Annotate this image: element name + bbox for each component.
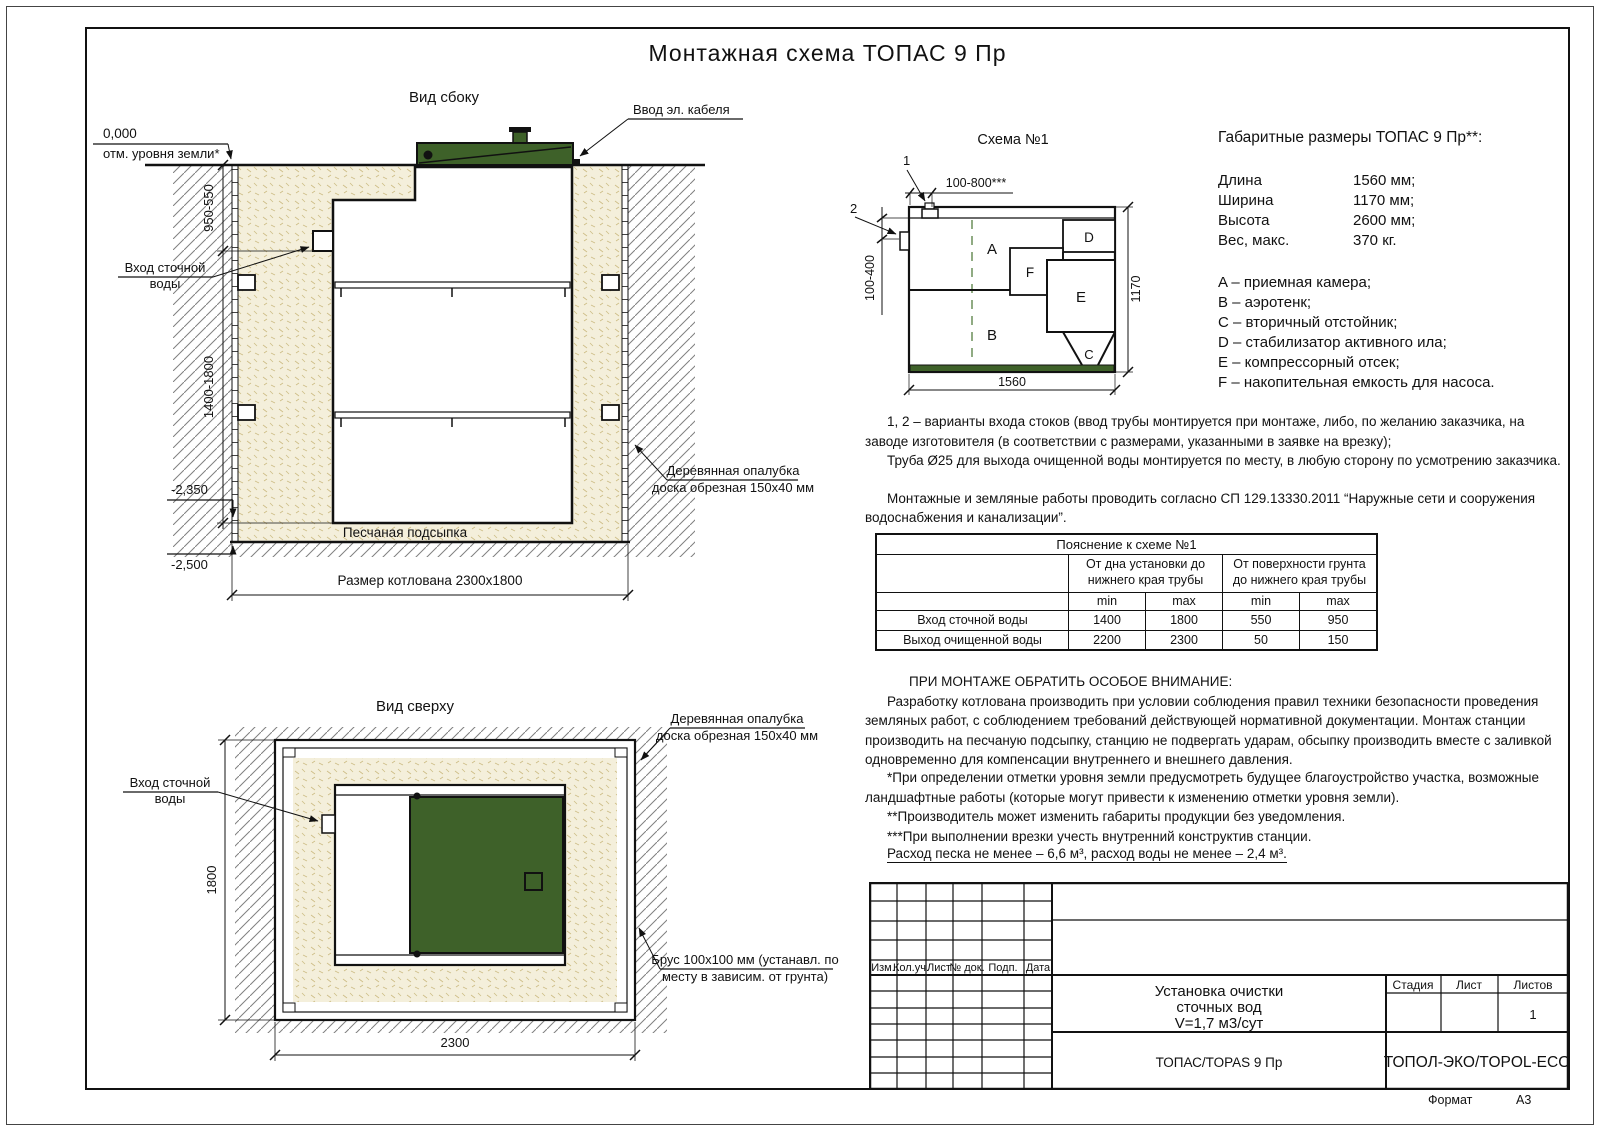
row-value: 950 <box>1300 610 1378 630</box>
row-name: Выход очищенной воды <box>876 630 1069 650</box>
row-value: 550 <box>1223 610 1300 630</box>
explanation-table: Пояснение к схеме №1 От дна установки до… <box>875 533 1378 651</box>
top-view-drawing: Вид сверху Вход сточной воды <box>85 655 865 1095</box>
dim-1170: 1170 <box>1116 202 1143 377</box>
footnotes-block: *При определении отметки уровня земли пр… <box>865 768 1560 846</box>
top-view-title: Вид сверху <box>376 698 455 715</box>
format-label: Формат <box>1428 1093 1472 1107</box>
spec-value: 370 кг. <box>1353 231 1397 251</box>
row-value: 2300 <box>1146 630 1223 650</box>
cable-entry-point <box>573 159 580 166</box>
spec-label: Высота <box>1218 211 1353 231</box>
legend-item: B – аэротенк; <box>1218 293 1578 313</box>
compartment-c-label: C <box>1084 347 1093 362</box>
legend-item: E – компрессорный отсек; <box>1218 353 1578 373</box>
spec-label: Ширина <box>1218 191 1353 211</box>
spec-label: Вес, макс. <box>1218 231 1353 251</box>
table-max-header: max <box>1300 592 1378 610</box>
cable-entry-label: Ввод эл. кабеля <box>633 102 730 117</box>
footnote: *При определении отметки уровня земли пр… <box>865 768 1560 807</box>
footnote: **Производитель может изменить габариты … <box>865 807 1560 827</box>
sheets-header: Листов <box>1514 978 1553 992</box>
marker-2-label: 2 <box>850 201 857 216</box>
specs-title: Габаритные размеры ТОПАС 9 Пр**: <box>1218 129 1578 147</box>
dim-1400-1800: 1400-1800 <box>201 356 216 418</box>
col-izm: Изм. <box>871 962 895 974</box>
inlet-label-line2: воды <box>150 276 181 291</box>
inlet-top-line2: воды <box>155 791 186 806</box>
note-paragraph: 1, 2 – варианты входа стоков (ввод трубы… <box>865 412 1565 451</box>
table-max-header: max <box>1146 592 1223 610</box>
table-title: Пояснение к схеме №1 <box>876 534 1377 554</box>
compartment-f-label: F <box>1026 265 1034 280</box>
spec-value: 1170 мм; <box>1353 191 1414 211</box>
col-koluch: Кол.уч. <box>893 962 929 974</box>
compartment-a-label: A <box>987 241 997 258</box>
table-min-header: min <box>1223 592 1300 610</box>
tank-body <box>333 167 572 523</box>
level-zero-label: 0,000 <box>103 126 137 141</box>
inlet-stub <box>313 231 333 251</box>
col-list: Лист <box>927 962 951 974</box>
schema-title: Схема №1 <box>977 132 1048 148</box>
compartment-b-label: B <box>987 327 997 344</box>
footnote: ***При выполнении врезки учесть внутренн… <box>865 827 1560 847</box>
col-podp: Подп. <box>988 962 1017 974</box>
spec-row: Ширина 1170 мм; <box>1218 191 1578 211</box>
warning-body: Разработку котлована производить при усл… <box>865 692 1560 770</box>
spec-value: 1560 мм; <box>1353 171 1415 191</box>
cable-entry-callout: Ввод эл. кабеля <box>580 102 743 156</box>
level-2500-label: -2,500 <box>171 557 208 572</box>
row-value: 150 <box>1300 630 1378 650</box>
warning-block: ПРИ МОНТАЖЕ ОБРАТИТЬ ОСОБОЕ ВНИМАНИЕ: Ра… <box>865 672 1560 770</box>
col-data: Дата <box>1026 962 1051 974</box>
row-value: 50 <box>1223 630 1300 650</box>
spec-value: 2600 мм; <box>1353 211 1415 231</box>
vent-cap <box>509 127 531 132</box>
timber-line2: месту в зависим. от грунта) <box>662 969 828 984</box>
dim-1560-label: 1560 <box>998 375 1026 389</box>
ground-mark-label: отм. уровня земли* <box>103 146 220 161</box>
dim-100-400-label: 100-400 <box>863 255 877 301</box>
table-group1-header: От дна установки до нижнего края трубы <box>1069 554 1223 592</box>
sand-bed-label: Песчаная подсыпка <box>343 525 468 540</box>
sheets-value: 1 <box>1529 1007 1536 1022</box>
formwork-label-line2: доска обрезная 150x40 мм <box>652 480 814 495</box>
drawing-sheet: Монтажная схема ТОПАС 9 Пр <box>0 0 1600 1131</box>
table-row: Выход очищенной воды 2200 2300 50 150 <box>876 630 1377 650</box>
formwork-top-line1: Деревянная опалубка <box>671 711 805 726</box>
row-value: 1800 <box>1146 610 1223 630</box>
note-paragraph: Труба Ø25 для выхода очищенной воды монт… <box>865 451 1565 471</box>
warning-heading: ПРИ МОНТАЖЕ ОБРАТИТЬ ОСОБОЕ ВНИМАНИЕ: <box>887 672 1560 692</box>
dim-950-550: 950-550 <box>201 184 216 232</box>
legend-item: A – приемная камера; <box>1218 273 1578 293</box>
timber-callout: Брус 100x100 мм (устанавл. по месту в за… <box>639 928 839 984</box>
lid-latch <box>424 151 433 160</box>
dim-1560: 1560 <box>904 374 1120 395</box>
company-name: ТОПОЛ-ЭКО/TOPOL-ECO <box>1384 1054 1570 1071</box>
specs-block: Габаритные размеры ТОПАС 9 Пр**: Длина 1… <box>1218 129 1578 393</box>
consumption-note: Расход песка не менее – 6,6 м³, расход в… <box>887 846 1287 861</box>
doc-name-line3: V=1,7 м3/сут <box>1175 1015 1264 1032</box>
dim-100-800: 100-800*** <box>905 176 1013 207</box>
notes-block: 1, 2 – варианты входа стоков (ввод трубы… <box>865 412 1565 528</box>
dim-100-800-label: 100-800*** <box>946 176 1007 190</box>
dim-1170-label: 1170 <box>1129 276 1143 303</box>
product-name: ТОПАС/TOPAS 9 Пр <box>1156 1055 1283 1070</box>
marker-1-label: 1 <box>903 153 910 168</box>
pipe-point-bottom <box>414 951 421 958</box>
pit-size-label: Размер котлована 2300x1800 <box>338 573 523 588</box>
formwork-label-line1: Деревянная опалубка <box>667 463 801 478</box>
pipe-point-top <box>414 793 421 800</box>
vent-pipe <box>513 132 527 143</box>
schema-bottom-strip <box>910 365 1114 372</box>
inlet-label-line1: Вход сточной <box>125 260 206 275</box>
table-row: Вход сточной воды 1400 1800 550 950 <box>876 610 1377 630</box>
format-value: А3 <box>1516 1093 1531 1107</box>
table-min-header: min <box>1069 592 1146 610</box>
table-corner-cell <box>876 554 1069 592</box>
legend-item: F – накопительная емкость для насоса. <box>1218 373 1578 393</box>
formwork-top-line2: доска обрезная 150x40 мм <box>656 728 818 743</box>
row-value: 1400 <box>1069 610 1146 630</box>
row-name: Вход сточной воды <box>876 610 1069 630</box>
ground-level-mark: 0,000 отм. уровня земли* <box>93 126 231 161</box>
spec-row: Вес, макс. 370 кг. <box>1218 231 1578 251</box>
table-group2-header: От поверхности грунта до нижнего края тр… <box>1223 554 1378 592</box>
inlet-stub-top <box>322 815 335 833</box>
table-empty-cell <box>876 592 1069 610</box>
formwork-callout-top: Деревянная опалубка доска обрезная 150x4… <box>641 711 818 760</box>
tank-lid-top <box>410 797 563 953</box>
doc-name-line2: сточных вод <box>1176 999 1262 1016</box>
row-value: 2200 <box>1069 630 1146 650</box>
compartment-d-label: D <box>1084 230 1094 245</box>
dim-2300-label: 2300 <box>441 1035 470 1050</box>
sheet-header: Лист <box>1456 978 1483 992</box>
col-ndok: № док. <box>949 962 984 974</box>
spec-row: Высота 2600 мм; <box>1218 211 1578 231</box>
compartment-e-label: E <box>1076 289 1086 306</box>
stage-header: Стадия <box>1393 978 1434 992</box>
legend-item: D – стабилизатор активного ила; <box>1218 333 1578 353</box>
legend-item: C – вторичный отстойник; <box>1218 313 1578 333</box>
inlet-top-line1: Вход сточной <box>130 775 211 790</box>
doc-name-line1: Установка очистки <box>1155 983 1284 1000</box>
level-2350-label: -2,350 <box>171 482 208 497</box>
side-view-drawing: 950-550 1400-1800 0,000 отм. уровня земл… <box>85 85 855 630</box>
page-title: Монтажная схема ТОПАС 9 Пр <box>85 40 1570 67</box>
spec-row: Длина 1560 мм; <box>1218 171 1578 191</box>
spec-label: Длина <box>1218 171 1353 191</box>
note-paragraph: Монтажные и земляные работы проводить со… <box>865 489 1565 528</box>
dim-1800-label: 1800 <box>204 866 219 895</box>
title-block: Изм. Кол.уч. Лист № док. Подп. Дата Стад… <box>869 882 1570 1090</box>
schema-1-drawing: Схема №1 A B C D E F 1 2 <box>830 125 1175 410</box>
inlet-variant-2: 2 <box>850 201 909 250</box>
tank-lid <box>417 127 580 166</box>
side-view-title: Вид сбоку <box>409 89 479 106</box>
legend-list: A – приемная камера; B – аэротенк; C – в… <box>1218 273 1578 393</box>
timber-line1: Брус 100x100 мм (устанавл. по <box>651 952 838 967</box>
